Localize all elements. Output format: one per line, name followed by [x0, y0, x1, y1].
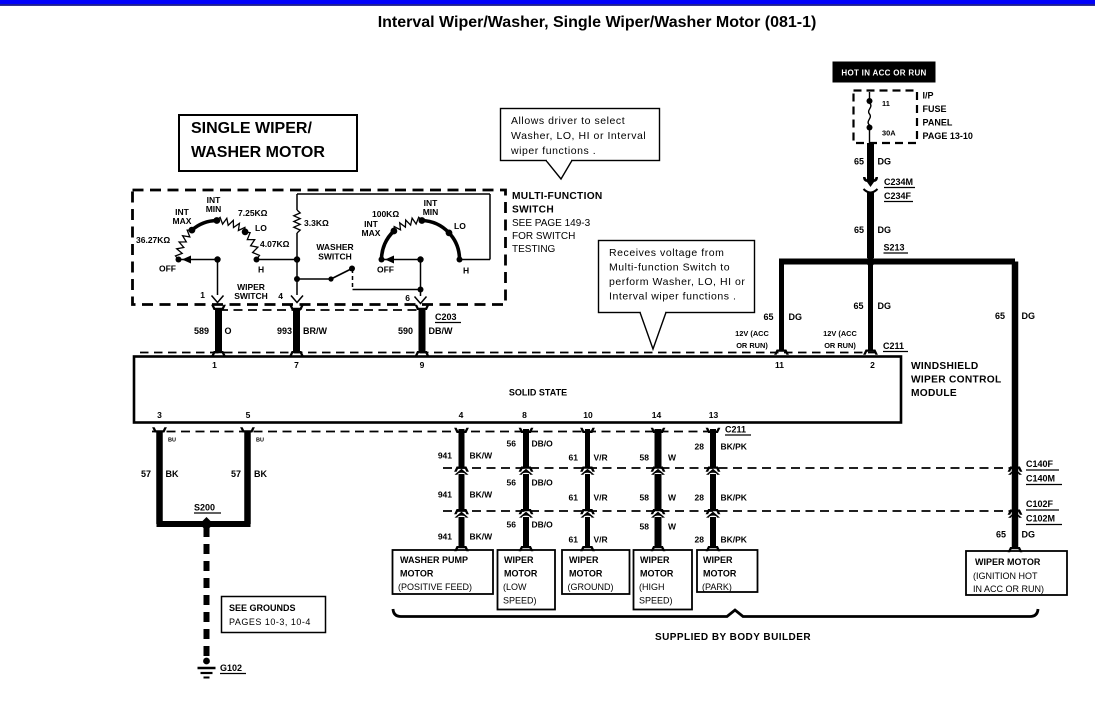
svg-text:C140F: C140F: [1026, 459, 1054, 469]
svg-text:1: 1: [212, 360, 217, 370]
svg-text:61: 61: [569, 453, 579, 463]
svg-text:56: 56: [507, 520, 517, 530]
svg-text:BU: BU: [168, 438, 176, 444]
svg-text:Receives voltage from: Receives voltage from: [609, 247, 724, 259]
svg-text:C211: C211: [725, 425, 746, 435]
svg-text:W: W: [668, 453, 677, 463]
svg-text:S213: S213: [884, 243, 905, 253]
svg-text:SWITCH: SWITCH: [234, 291, 268, 301]
svg-text:3: 3: [157, 410, 162, 420]
svg-text:(HIGH: (HIGH: [639, 582, 665, 592]
svg-text:65: 65: [996, 530, 1006, 540]
svg-text:WIPER: WIPER: [504, 555, 534, 565]
svg-text:wiper functions .: wiper functions .: [510, 145, 596, 157]
svg-text:HOT IN ACC OR RUN: HOT IN ACC OR RUN: [841, 69, 926, 78]
svg-text:(PARK): (PARK): [702, 582, 732, 592]
svg-text:13: 13: [709, 410, 719, 420]
svg-text:S200: S200: [194, 503, 215, 513]
svg-text:28: 28: [695, 442, 705, 452]
svg-text:SPEED): SPEED): [639, 596, 673, 606]
svg-text:C102F: C102F: [1026, 499, 1054, 509]
svg-text:OR RUN): OR RUN): [736, 341, 768, 350]
svg-text:IN ACC OR RUN): IN ACC OR RUN): [973, 584, 1044, 594]
svg-text:WIPER: WIPER: [569, 555, 599, 565]
svg-text:(GROUND): (GROUND): [568, 582, 614, 592]
svg-text:LO: LO: [255, 223, 267, 233]
svg-text:MOTOR: MOTOR: [569, 569, 603, 579]
svg-text:C234M: C234M: [884, 177, 913, 187]
svg-text:9: 9: [420, 360, 425, 370]
svg-text:941: 941: [438, 532, 452, 542]
svg-text:MOTOR: MOTOR: [400, 569, 434, 579]
svg-text:589: 589: [194, 326, 209, 336]
svg-text:WASHER: WASHER: [316, 242, 353, 252]
svg-text:MAX: MAX: [173, 216, 192, 226]
svg-text:58: 58: [640, 493, 650, 503]
svg-text:FUSE: FUSE: [923, 104, 947, 114]
svg-text:OFF: OFF: [159, 264, 176, 274]
svg-text:C140M: C140M: [1026, 474, 1055, 484]
svg-text:Interval wiper functions .: Interval wiper functions .: [609, 291, 737, 303]
svg-text:W: W: [668, 493, 677, 503]
svg-text:WASHER MOTOR: WASHER MOTOR: [191, 144, 325, 161]
svg-text:941: 941: [438, 451, 452, 461]
svg-text:OFF: OFF: [377, 265, 394, 275]
svg-text:Allows driver to select: Allows driver to select: [511, 115, 625, 127]
svg-text:12V (ACC: 12V (ACC: [823, 329, 857, 338]
svg-text:65: 65: [853, 301, 863, 311]
svg-text:TESTING: TESTING: [512, 244, 556, 255]
svg-text:V/R: V/R: [594, 453, 608, 463]
svg-text:BK: BK: [166, 469, 179, 479]
svg-text:BK/W: BK/W: [470, 532, 494, 542]
svg-text:H: H: [258, 265, 264, 275]
svg-text:28: 28: [695, 493, 705, 503]
svg-text:SUPPLIED BY BODY BUILDER: SUPPLIED BY BODY BUILDER: [655, 632, 811, 643]
svg-text:C234F: C234F: [884, 191, 912, 201]
svg-text:DG: DG: [1022, 311, 1036, 321]
svg-text:61: 61: [569, 535, 579, 545]
svg-text:DG: DG: [1022, 530, 1036, 540]
svg-text:DG: DG: [789, 312, 803, 322]
svg-text:(IGNITION HOT: (IGNITION HOT: [973, 571, 1038, 581]
svg-text:BK: BK: [254, 469, 267, 479]
svg-text:MIN: MIN: [206, 204, 222, 214]
svg-text:DG: DG: [878, 225, 892, 235]
svg-text:6: 6: [405, 293, 410, 303]
svg-text:WIPER CONTROL: WIPER CONTROL: [911, 375, 1002, 386]
svg-text:4: 4: [459, 410, 464, 420]
svg-text:V/R: V/R: [594, 493, 608, 503]
svg-text:OR RUN): OR RUN): [824, 341, 856, 350]
svg-text:G102: G102: [220, 663, 242, 673]
svg-text:DB/W: DB/W: [429, 326, 453, 336]
svg-text:65: 65: [854, 157, 864, 167]
svg-text:Washer, LO, HI or Interval: Washer, LO, HI or Interval: [511, 130, 646, 142]
svg-text:12V (ACC: 12V (ACC: [735, 329, 769, 338]
svg-text:BK/W: BK/W: [470, 490, 494, 500]
svg-text:4.07KΩ: 4.07KΩ: [260, 239, 290, 249]
svg-text:MOTOR: MOTOR: [640, 569, 674, 579]
svg-text:WINDSHIELD: WINDSHIELD: [911, 361, 979, 372]
svg-text:DB/O: DB/O: [532, 439, 554, 449]
svg-text:perform Washer, LO, HI or: perform Washer, LO, HI or: [609, 276, 745, 288]
svg-text:11: 11: [882, 99, 890, 108]
svg-text:O: O: [225, 326, 232, 336]
svg-text:DB/O: DB/O: [532, 478, 554, 488]
svg-text:941: 941: [438, 490, 452, 500]
svg-text:BR/W: BR/W: [303, 326, 327, 336]
svg-text:MOTOR: MOTOR: [504, 569, 538, 579]
svg-text:36.27KΩ: 36.27KΩ: [136, 235, 170, 245]
svg-text:BK/PK: BK/PK: [721, 442, 748, 452]
svg-text:4: 4: [278, 291, 283, 301]
svg-text:C211: C211: [883, 341, 904, 351]
svg-text:PAGE 13-10: PAGE 13-10: [923, 131, 973, 141]
svg-text:WASHER PUMP: WASHER PUMP: [400, 555, 468, 565]
svg-text:Multi-function Switch to: Multi-function Switch to: [609, 262, 730, 274]
svg-text:1: 1: [200, 290, 205, 300]
svg-text:BK/PK: BK/PK: [721, 535, 748, 545]
svg-text:8: 8: [522, 410, 527, 420]
svg-text:MODULE: MODULE: [911, 388, 957, 399]
svg-text:MOTOR: MOTOR: [703, 569, 737, 579]
svg-text:61: 61: [569, 493, 579, 503]
svg-text:I/P: I/P: [923, 91, 934, 101]
svg-text:5: 5: [246, 410, 251, 420]
svg-text:57: 57: [231, 469, 241, 479]
svg-text:7: 7: [294, 360, 299, 370]
svg-text:58: 58: [640, 453, 650, 463]
svg-text:(LOW: (LOW: [503, 582, 527, 592]
svg-text:C102M: C102M: [1026, 514, 1055, 524]
svg-text:100KΩ: 100KΩ: [372, 209, 399, 219]
svg-text:BK/PK: BK/PK: [721, 493, 748, 503]
svg-text:WIPER MOTOR: WIPER MOTOR: [975, 557, 1041, 567]
svg-text:SWITCH: SWITCH: [512, 205, 554, 216]
svg-text:SOLID STATE: SOLID STATE: [509, 388, 567, 398]
svg-text:C203: C203: [435, 312, 457, 322]
svg-text:65: 65: [995, 311, 1005, 321]
svg-text:W: W: [668, 522, 677, 532]
svg-text:Interval Wiper/Washer, Single: Interval Wiper/Washer, Single Wiper/Wash…: [378, 14, 817, 31]
svg-text:56: 56: [507, 478, 517, 488]
svg-text:FOR SWITCH: FOR SWITCH: [512, 231, 575, 242]
svg-text:V/R: V/R: [594, 535, 608, 545]
svg-text:3.3KΩ: 3.3KΩ: [304, 218, 329, 228]
svg-text:MIN: MIN: [423, 207, 439, 217]
svg-text:30A: 30A: [882, 129, 896, 138]
svg-text:7.25KΩ: 7.25KΩ: [238, 208, 268, 218]
svg-text:590: 590: [398, 326, 413, 336]
svg-text:SWITCH: SWITCH: [318, 252, 352, 262]
svg-text:SEE PAGE 149-3: SEE PAGE 149-3: [512, 218, 591, 229]
svg-text:58: 58: [640, 522, 650, 532]
svg-text:H: H: [463, 266, 469, 276]
svg-text:LO: LO: [454, 221, 466, 231]
svg-text:65: 65: [854, 225, 864, 235]
svg-text:WIPER: WIPER: [703, 555, 733, 565]
svg-text:PANEL: PANEL: [923, 118, 953, 128]
svg-text:14: 14: [652, 410, 662, 420]
svg-text:993: 993: [277, 326, 292, 336]
svg-text:2: 2: [870, 360, 875, 370]
svg-text:(POSITIVE FEED): (POSITIVE FEED): [398, 582, 472, 592]
svg-text:65: 65: [763, 312, 773, 322]
svg-text:56: 56: [507, 439, 517, 449]
svg-text:MAX: MAX: [362, 228, 381, 238]
svg-text:MULTI-FUNCTION: MULTI-FUNCTION: [512, 191, 603, 202]
svg-text:SEE GROUNDS: SEE GROUNDS: [229, 603, 296, 613]
svg-text:DG: DG: [878, 157, 892, 167]
svg-text:10: 10: [583, 410, 593, 420]
svg-text:28: 28: [695, 535, 705, 545]
svg-text:WIPER: WIPER: [640, 555, 670, 565]
svg-text:11: 11: [775, 360, 784, 370]
svg-text:SINGLE WIPER/: SINGLE WIPER/: [191, 120, 312, 137]
svg-text:BK/W: BK/W: [470, 451, 494, 461]
svg-text:SPEED): SPEED): [503, 596, 537, 606]
svg-text:DG: DG: [878, 301, 892, 311]
svg-text:DB/O: DB/O: [532, 520, 554, 530]
svg-text:57: 57: [141, 469, 151, 479]
svg-text:PAGES 10-3, 10-4: PAGES 10-3, 10-4: [229, 617, 311, 627]
svg-text:BU: BU: [256, 438, 264, 444]
